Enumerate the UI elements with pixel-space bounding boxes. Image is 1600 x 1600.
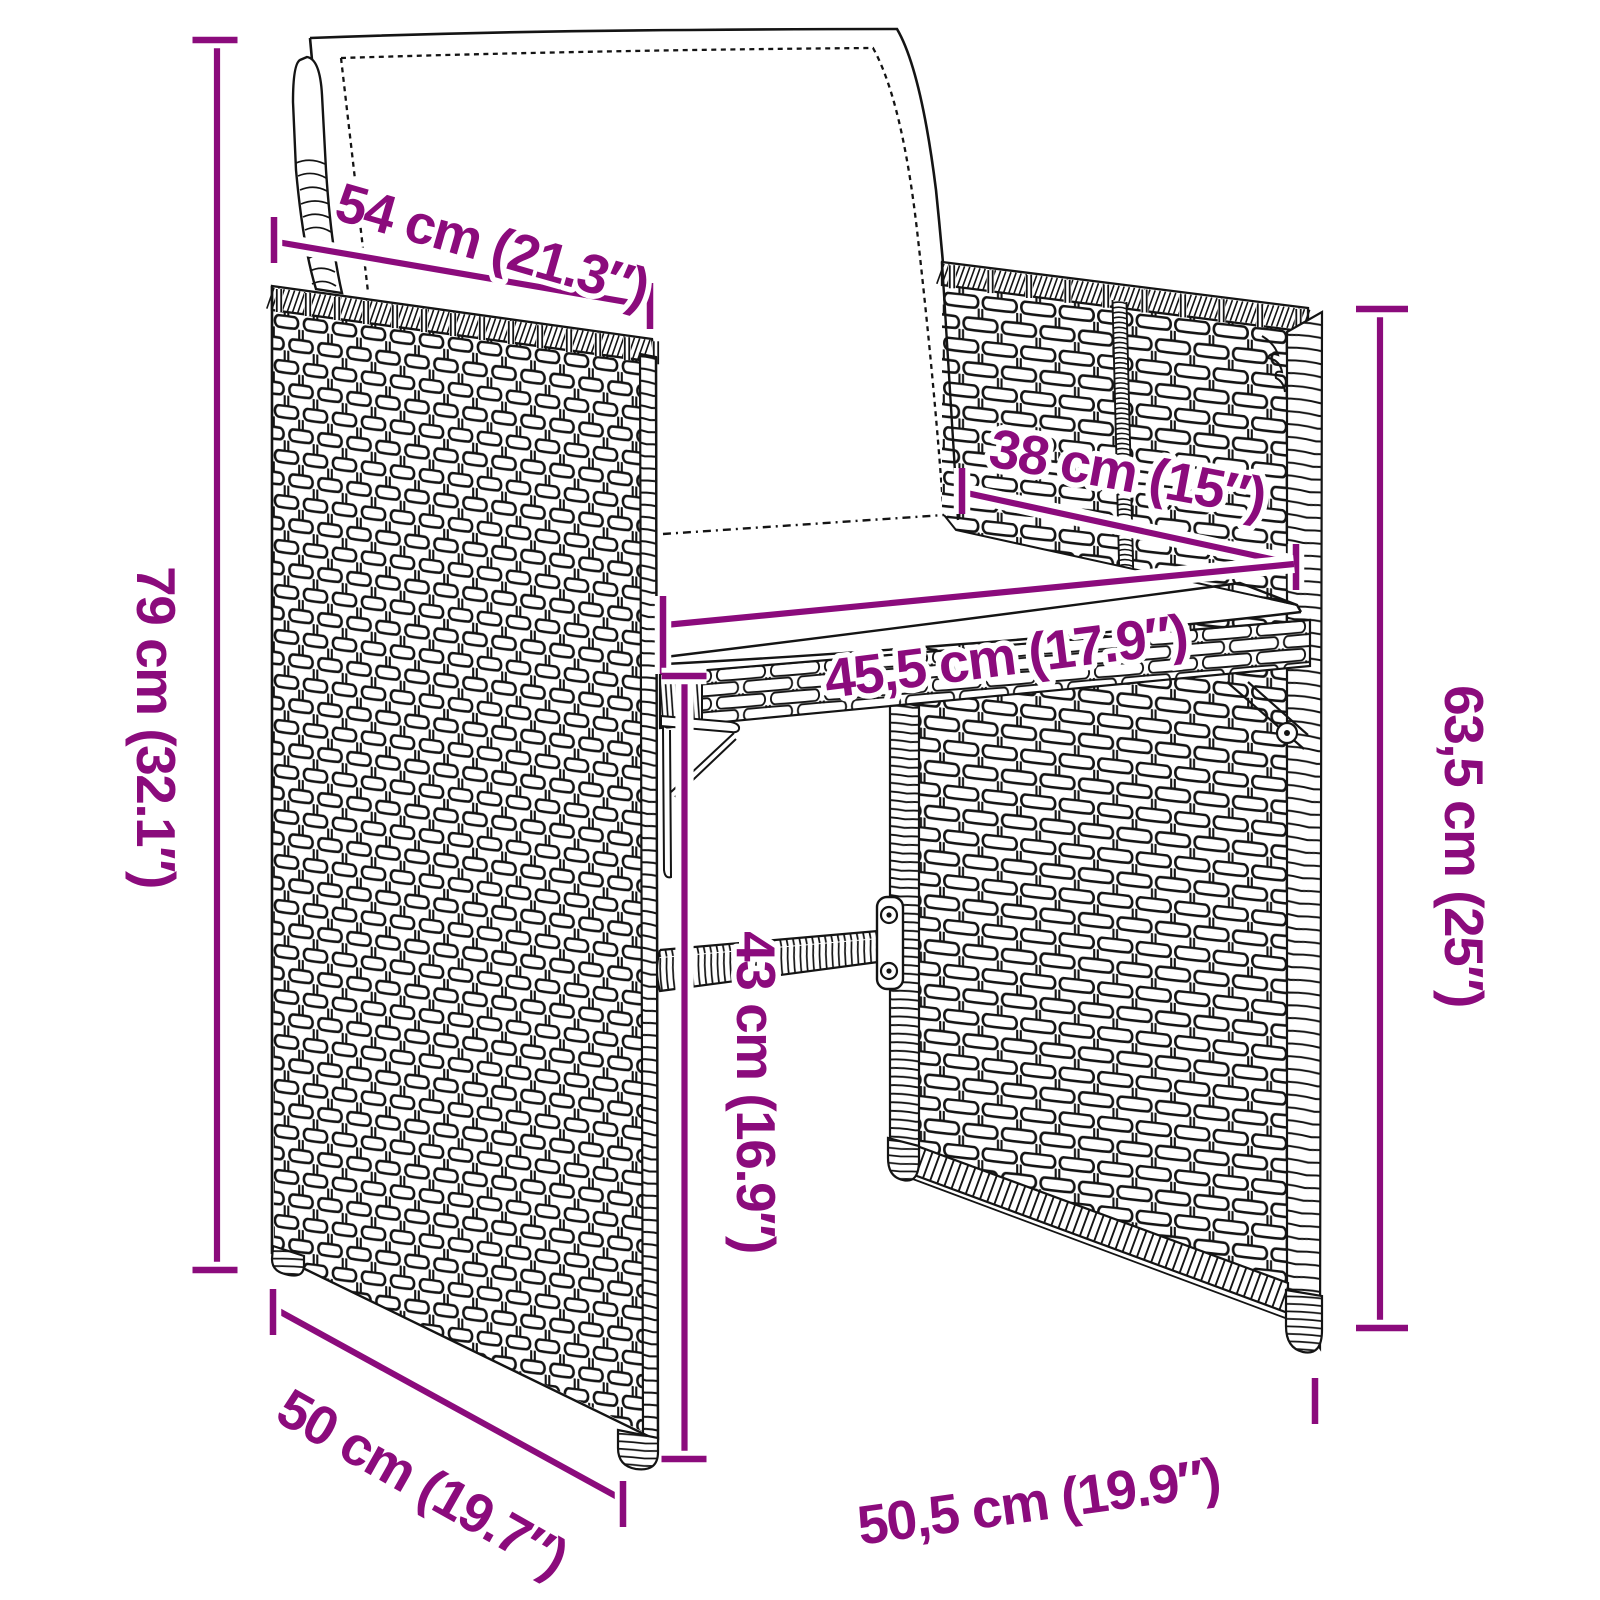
svg-text:79 cm (32.1″): 79 cm (32.1″) — [125, 566, 187, 888]
svg-text:50,5 cm (19.9″): 50,5 cm (19.9″) — [854, 1446, 1224, 1557]
svg-text:63,5 cm (25″): 63,5 cm (25″) — [1433, 685, 1495, 1007]
svg-text:43 cm (16.9″): 43 cm (16.9″) — [725, 931, 787, 1253]
svg-text:50 cm (19.7″): 50 cm (19.7″) — [267, 1376, 578, 1588]
